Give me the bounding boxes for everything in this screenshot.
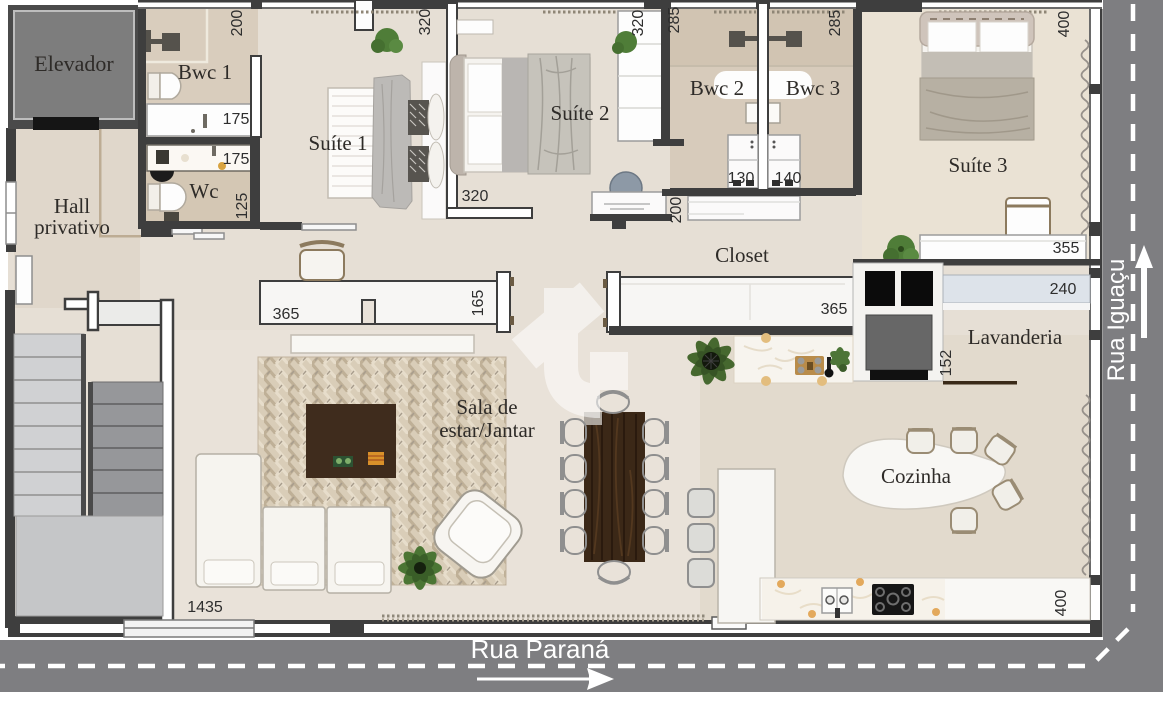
svg-text:175: 175 [223, 111, 250, 128]
svg-text:Lavanderia: Lavanderia [968, 325, 1063, 349]
svg-text:285: 285 [666, 7, 683, 34]
svg-text:Elevador: Elevador [34, 51, 114, 76]
svg-text:355: 355 [1053, 240, 1080, 257]
svg-text:152: 152 [938, 350, 955, 377]
svg-text:240: 240 [1050, 281, 1077, 298]
svg-text:Rua Paraná: Rua Paraná [471, 634, 610, 664]
svg-text:365: 365 [273, 306, 300, 323]
svg-text:400: 400 [1053, 590, 1070, 617]
svg-text:Cozinha: Cozinha [881, 464, 952, 488]
svg-text:Closet: Closet [715, 243, 769, 267]
svg-text:365: 365 [821, 301, 848, 318]
svg-text:privativo: privativo [34, 215, 110, 239]
svg-text:Rua Iguaçu: Rua Iguaçu [1103, 259, 1130, 382]
svg-text:200: 200 [668, 197, 685, 224]
svg-text:125: 125 [234, 193, 251, 220]
svg-text:Sala de: Sala de [456, 395, 517, 419]
svg-text:175: 175 [223, 151, 250, 168]
svg-text:140: 140 [775, 170, 802, 187]
svg-text:Suíte 1: Suíte 1 [309, 131, 368, 155]
svg-text:1435: 1435 [187, 599, 223, 616]
svg-text:320: 320 [462, 188, 489, 205]
svg-text:Wc: Wc [189, 179, 218, 203]
svg-text:165: 165 [470, 290, 487, 317]
svg-text:320: 320 [417, 9, 434, 36]
svg-text:400: 400 [1056, 11, 1073, 38]
svg-text:320: 320 [630, 10, 647, 37]
svg-text:Bwc 3: Bwc 3 [786, 76, 840, 100]
svg-text:Bwc 1: Bwc 1 [178, 60, 232, 84]
svg-text:285: 285 [827, 10, 844, 37]
svg-text:estar/Jantar: estar/Jantar [439, 418, 535, 442]
svg-text:Bwc 2: Bwc 2 [690, 76, 744, 100]
svg-text:Suíte 2: Suíte 2 [551, 101, 610, 125]
svg-text:200: 200 [229, 10, 246, 37]
svg-text:Suíte 3: Suíte 3 [949, 153, 1008, 177]
svg-text:130: 130 [728, 170, 755, 187]
